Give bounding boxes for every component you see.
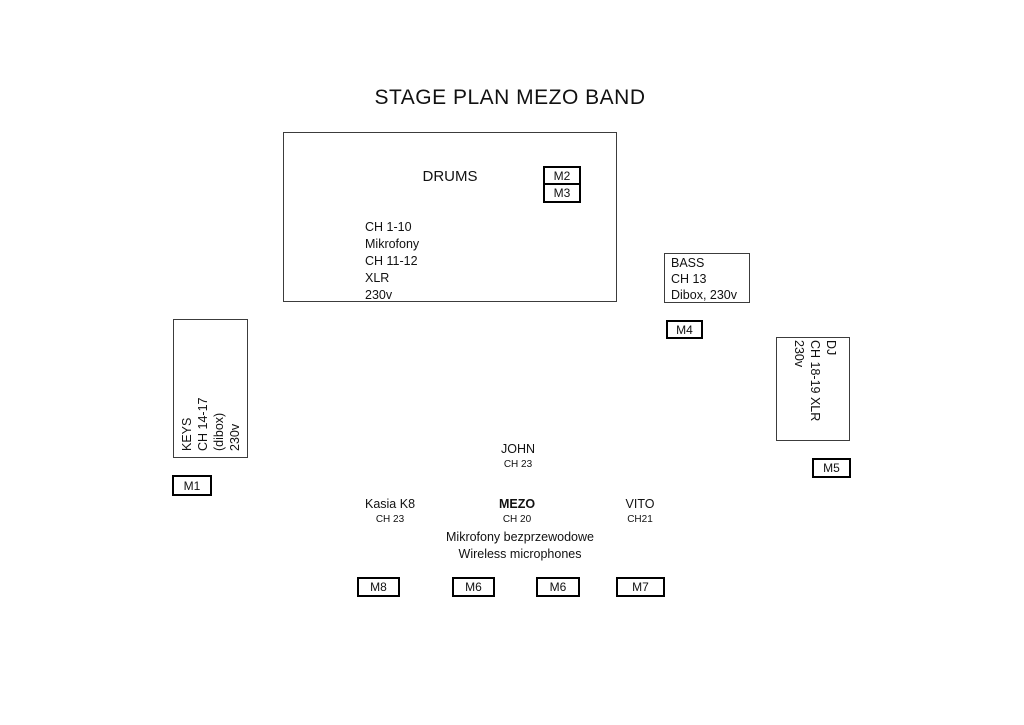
performer-name: VITO	[580, 497, 700, 511]
wireless-note-line2: Wireless microphones	[410, 546, 630, 563]
performer-name: JOHN	[458, 442, 578, 456]
drums-label: DRUMS	[400, 168, 500, 185]
drums-channel-details: CH 1-10 Mikrofony CH 11-12 XLR 230v	[365, 219, 419, 304]
monitor-m5: M5	[812, 458, 851, 478]
performer-channel: CH 23	[330, 514, 450, 525]
monitor-m6-right: M6	[536, 577, 580, 597]
monitor-m3: M3	[543, 183, 581, 203]
monitor-m8: M8	[357, 577, 400, 597]
keys-channel-details: KEYS CH 14-17 (dibox) 230v	[179, 395, 243, 451]
performer-john: JOHN CH 23	[458, 442, 578, 470]
monitor-m7: M7	[616, 577, 665, 597]
performer-mezo: MEZO CH 20	[457, 497, 577, 525]
monitor-m6-left: M6	[452, 577, 495, 597]
drums-monitor-stack: M2 M3	[543, 166, 581, 203]
stage-plan-page: STAGE PLAN MEZO BAND DRUMS CH 1-10 Mikro…	[0, 0, 1024, 725]
dj-channel-details: DJ CH 18-19 XLR 230v	[791, 340, 839, 430]
bass-area-box: BASS CH 13 Dibox, 230v	[664, 253, 750, 303]
dj-area-box: DJ CH 18-19 XLR 230v	[776, 337, 850, 441]
monitor-m1: M1	[172, 475, 212, 496]
performer-channel: CH 23	[458, 459, 578, 470]
performer-channel: CH21	[580, 514, 700, 525]
wireless-note: Mikrofony bezprzewodowe Wireless microph…	[410, 529, 630, 562]
drums-area-box	[283, 132, 617, 302]
performer-name: Kasia K8	[330, 497, 450, 511]
performer-kasia: Kasia K8 CH 23	[330, 497, 450, 525]
performer-name: MEZO	[457, 497, 577, 511]
performer-vito: VITO CH21	[580, 497, 700, 525]
keys-area-box: KEYS CH 14-17 (dibox) 230v	[173, 319, 248, 458]
performer-channel: CH 20	[457, 514, 577, 525]
page-title: STAGE PLAN MEZO BAND	[260, 86, 760, 110]
wireless-note-line1: Mikrofony bezprzewodowe	[410, 529, 630, 546]
monitor-m4: M4	[666, 320, 703, 339]
